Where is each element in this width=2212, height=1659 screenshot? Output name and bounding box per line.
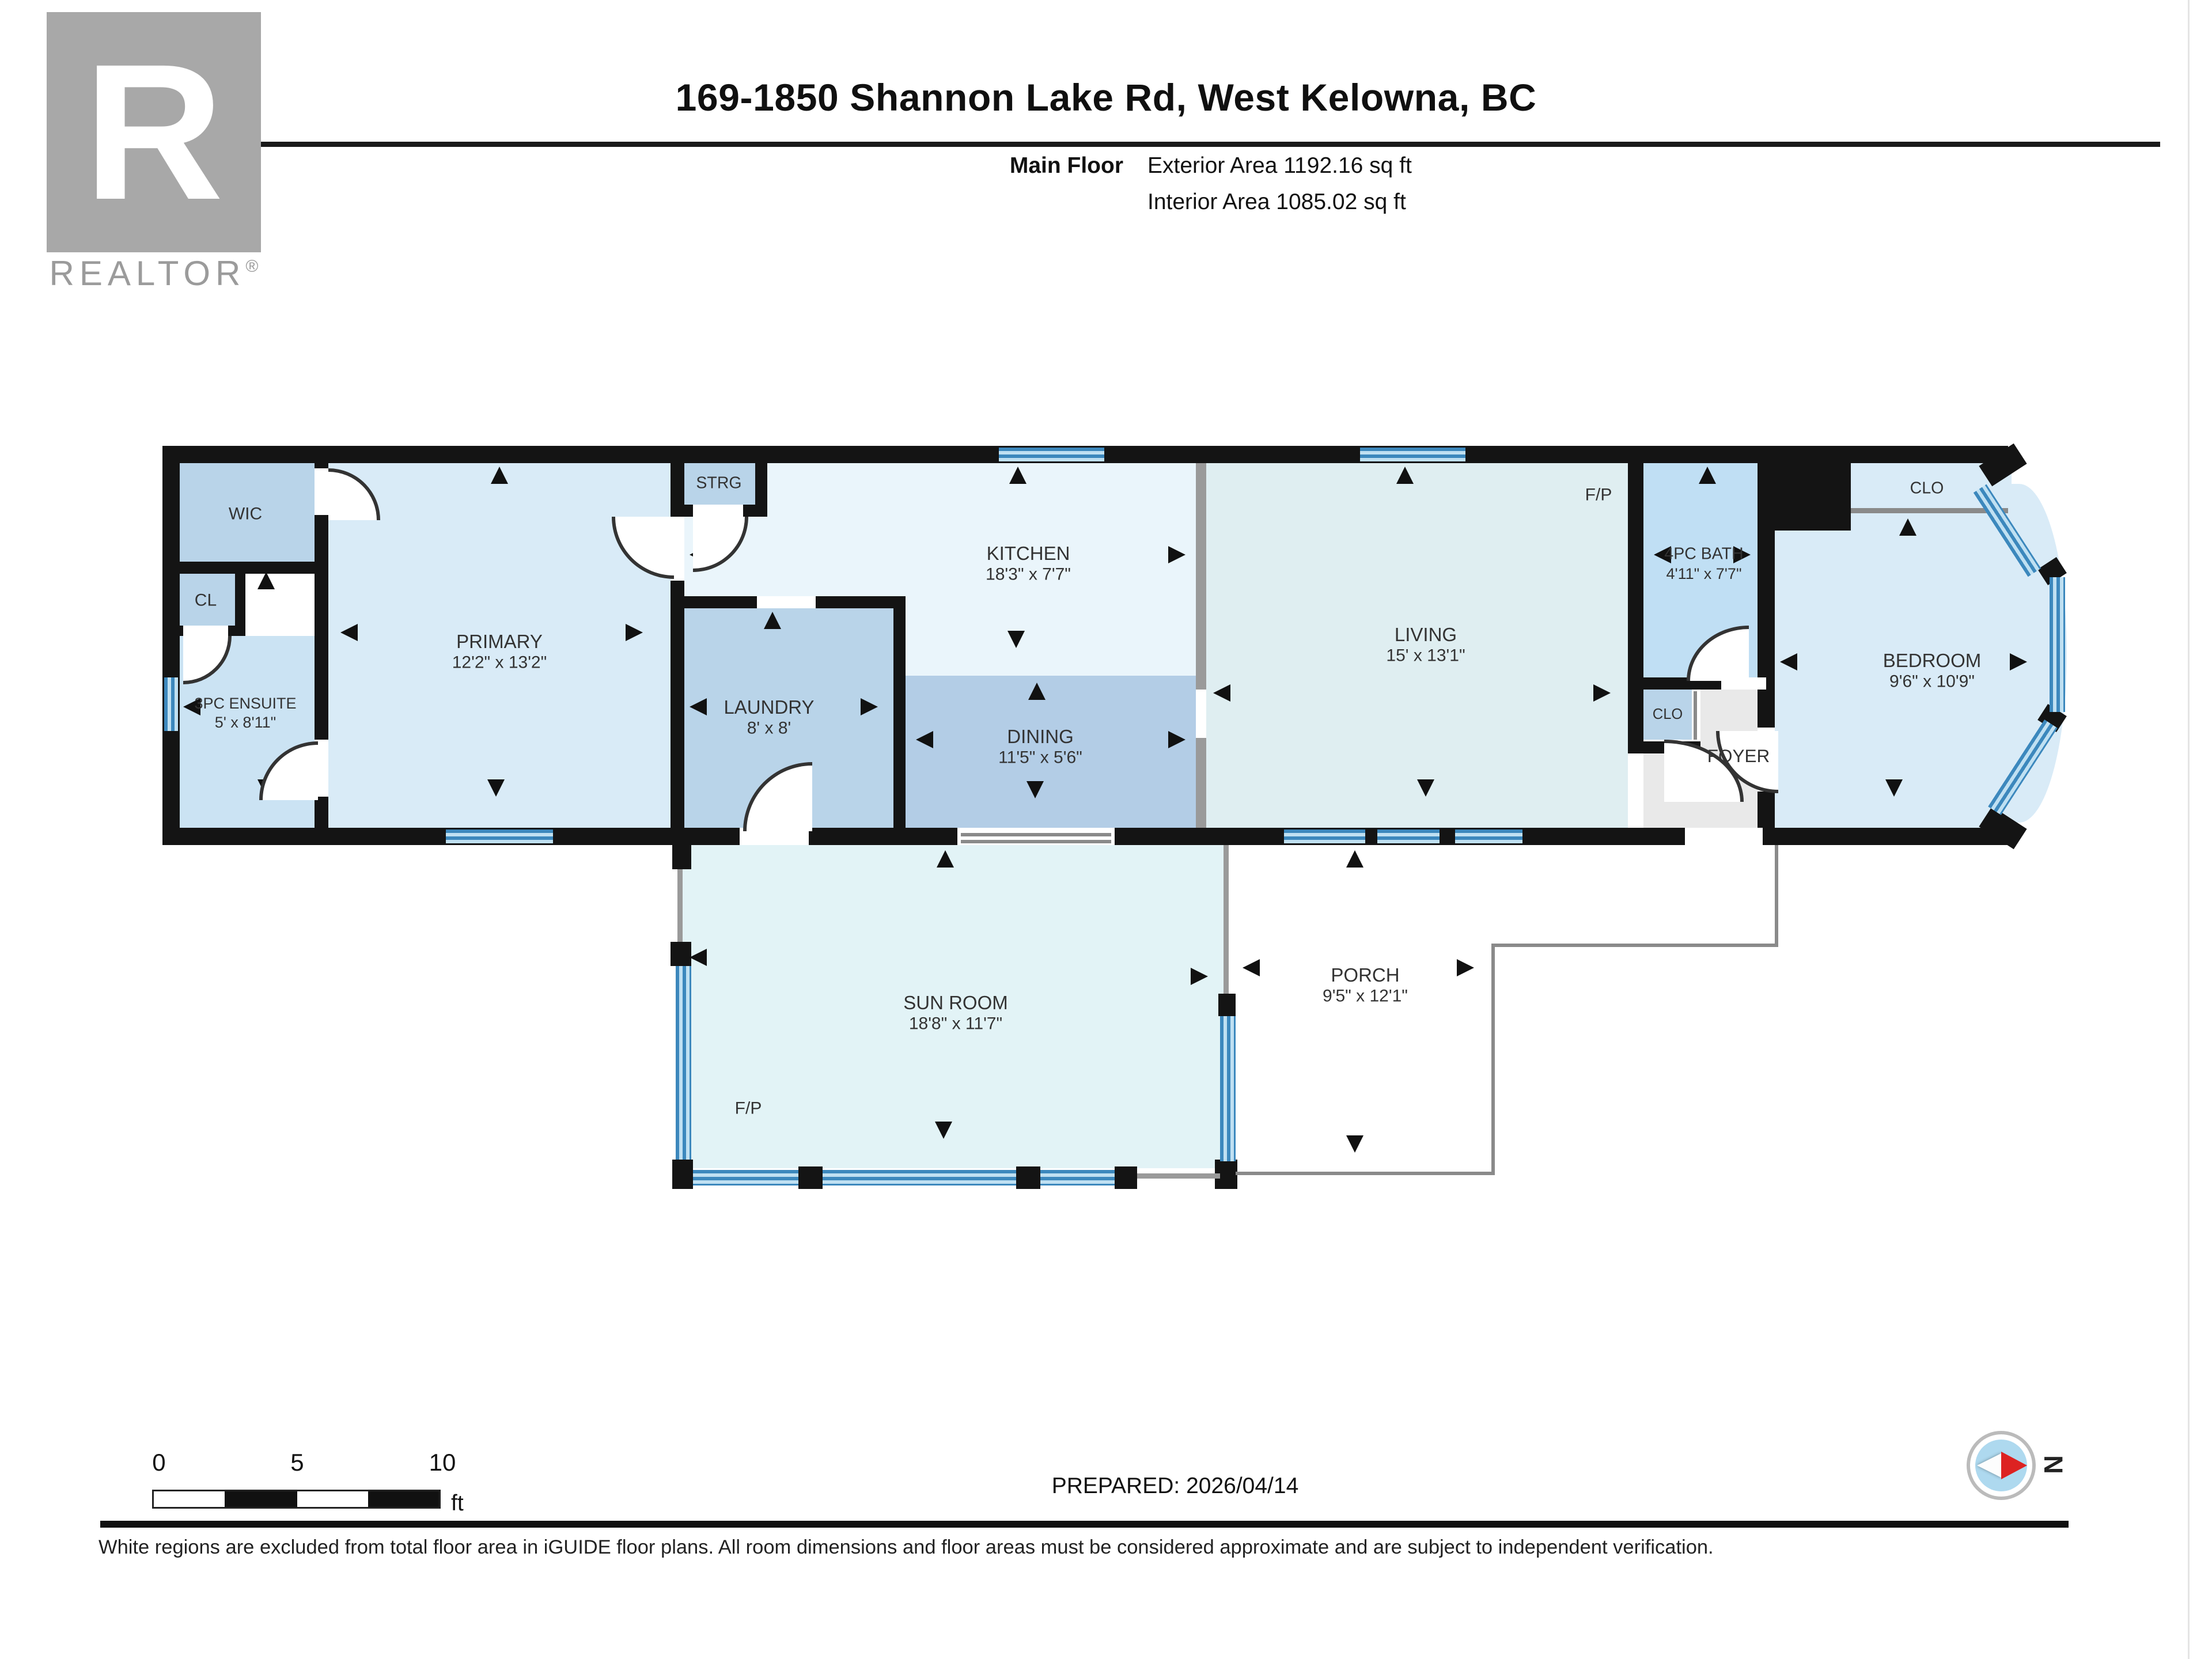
dimension-arrow	[2010, 653, 2027, 671]
scale-segment	[225, 1491, 297, 1507]
wall	[893, 608, 906, 828]
room-label-bath: 4PC BATH	[1664, 546, 1743, 565]
window	[1455, 829, 1522, 843]
wall	[162, 562, 328, 574]
dimension-arrow	[1885, 779, 1903, 797]
compass-needle-north	[2001, 1452, 2027, 1479]
window	[823, 1170, 1016, 1185]
room-label-dining: DINING	[1007, 728, 1074, 748]
wall	[672, 1160, 693, 1189]
porch-floor	[1236, 845, 1491, 1173]
compass-icon: N	[1967, 1427, 2088, 1503]
scale-start: 0	[138, 1448, 180, 1476]
wall	[1758, 463, 1851, 531]
room-dims-living: 15' x 13'1"	[1386, 647, 1465, 666]
room-label-living: LIVING	[1395, 626, 1457, 646]
room-label-kitchen: KITCHEN	[987, 544, 1070, 565]
dimension-arrow	[1168, 546, 1185, 563]
header-divider	[99, 142, 2160, 147]
dimension-arrow	[491, 467, 508, 484]
dimension-arrow	[1191, 968, 1208, 985]
door-opening	[693, 505, 743, 517]
wall	[672, 845, 691, 869]
fireplace-label-sunroom: F/P	[735, 1100, 762, 1119]
dimension-arrow	[1593, 684, 1611, 702]
half-wall	[1196, 738, 1206, 828]
window	[1220, 1016, 1236, 1161]
window	[1284, 829, 1365, 843]
room-dims-ensuite: 5' x 8'11"	[215, 714, 276, 731]
window	[446, 829, 553, 843]
dimension-arrow	[1396, 467, 1414, 484]
dimension-arrow	[1899, 518, 1916, 536]
window	[676, 966, 691, 1160]
room-label-laundry: LAUNDRY	[724, 698, 814, 719]
half-wall	[1224, 845, 1229, 994]
scale-unit: ft	[451, 1490, 464, 1516]
room-dims-kitchen: 18'3" x 7'7"	[986, 566, 1071, 585]
half-wall	[1196, 463, 1206, 690]
window	[1377, 829, 1440, 843]
room-label-strg: STRG	[696, 475, 741, 494]
floor-plan-canvas	[0, 0, 2212, 1659]
fireplace-label-living: F/P	[1585, 487, 1612, 506]
scale-segment	[154, 1491, 225, 1507]
room-dims-primary: 12'2" x 13'2"	[452, 654, 547, 673]
porch-outline	[1236, 1172, 1495, 1175]
room-label-sunroom: SUN ROOM	[903, 994, 1008, 1014]
wall	[1218, 994, 1236, 1016]
dimension-arrow	[1417, 779, 1434, 797]
dimension-arrow	[487, 779, 505, 797]
room-label-porch: PORCH	[1331, 966, 1399, 987]
room-label-wic: WIC	[229, 506, 262, 525]
room-label-clo-bedroom: CLO	[1910, 480, 1944, 499]
sliding-door	[961, 840, 1111, 843]
dimension-arrow	[1028, 683, 1046, 700]
dimension-arrow	[257, 572, 275, 589]
room-label-primary: PRIMARY	[456, 632, 543, 653]
room-dims-laundry: 8' x 8'	[747, 720, 791, 739]
dimension-arrow	[937, 850, 954, 868]
wall	[1758, 531, 1775, 731]
dimension-arrow	[1457, 959, 1474, 976]
dimension-arrow	[916, 731, 933, 748]
dimension-arrow	[1213, 684, 1230, 702]
wall	[1016, 1166, 1040, 1189]
half-wall	[677, 869, 683, 942]
half-wall	[1137, 1173, 1220, 1179]
compass-needle-tail	[1977, 1453, 2001, 1478]
room-label-ensuite: 3PC ENSUITE	[194, 695, 296, 712]
wall	[1115, 1166, 1137, 1189]
door-opening	[757, 596, 816, 608]
dimension-arrow	[690, 698, 707, 715]
porch-outline	[1491, 944, 1495, 1175]
dimension-arrow	[340, 624, 358, 641]
room-dims-porch: 9'5" x 12'1"	[1323, 988, 1408, 1007]
realtor-logo: R	[47, 12, 261, 252]
dimension-arrow	[935, 1122, 952, 1139]
window	[1360, 448, 1465, 461]
room-label-bedroom: BEDROOM	[1883, 652, 1982, 672]
realtor-wordmark: REALTOR®	[31, 256, 276, 296]
room-label-cl: CL	[195, 592, 217, 611]
room-dims-sunroom: 18'8" x 11'7"	[909, 1016, 1002, 1035]
page-edge-line	[2188, 0, 2190, 1659]
scale-end: 10	[422, 1448, 463, 1476]
scale-segment	[297, 1491, 368, 1507]
scale-mid: 5	[276, 1448, 318, 1476]
prepared-date: PREPARED: 2026/04/14	[968, 1472, 1382, 1498]
wall	[235, 574, 245, 626]
door-opening	[1685, 828, 1763, 845]
floor-plan-page: R REALTOR® 169-1850 Shannon Lake Rd, Wes…	[0, 0, 2212, 1659]
dimension-arrow	[1780, 653, 1797, 671]
room-label-foyer: FOYER	[1707, 747, 1770, 767]
porch-floor	[1491, 845, 1778, 945]
room-dims-dining: 11'5" x 5'6"	[998, 749, 1082, 768]
dimension-arrow	[690, 949, 707, 966]
dimension-arrow	[1007, 631, 1025, 648]
dimension-arrow	[1699, 467, 1716, 484]
dimension-arrow	[1243, 959, 1260, 976]
wall	[162, 446, 180, 845]
dimension-arrow	[1168, 731, 1185, 748]
scale-bar	[152, 1490, 441, 1509]
registered-mark: ®	[245, 258, 258, 277]
door-opening	[183, 626, 228, 636]
window	[999, 448, 1104, 461]
dimension-arrow	[626, 624, 643, 641]
half-wall	[1694, 691, 1697, 740]
dimension-arrow	[1346, 1135, 1363, 1153]
dimension-arrow	[1027, 781, 1044, 798]
porch-outline	[1491, 944, 1778, 947]
compass-north-letter: N	[2037, 1455, 2067, 1474]
wall	[798, 1166, 823, 1189]
dimension-arrow	[764, 612, 781, 629]
realtor-logo-letter: R	[84, 24, 224, 240]
dimension-arrow	[861, 698, 878, 715]
scale-segment	[368, 1491, 439, 1507]
room-dims-bath: 4'11" x 7'7"	[1666, 565, 1741, 582]
window	[693, 1170, 798, 1185]
porch-outline	[1775, 845, 1778, 947]
sliding-door	[961, 833, 1111, 836]
wall	[671, 942, 691, 966]
wall	[1628, 463, 1643, 690]
door-opening	[315, 468, 328, 515]
footer-divider	[100, 1521, 2069, 1528]
bay-window	[2050, 577, 2065, 712]
window	[164, 677, 178, 731]
room-dims-bedroom: 9'6" x 10'9"	[1889, 673, 1975, 692]
dimension-arrow	[1009, 467, 1027, 484]
dimension-arrow	[1346, 850, 1363, 868]
room-label-clo-hall: CLO	[1653, 705, 1683, 722]
window	[1040, 1170, 1115, 1185]
disclaimer-text: White regions are excluded from total fl…	[99, 1538, 2086, 1559]
